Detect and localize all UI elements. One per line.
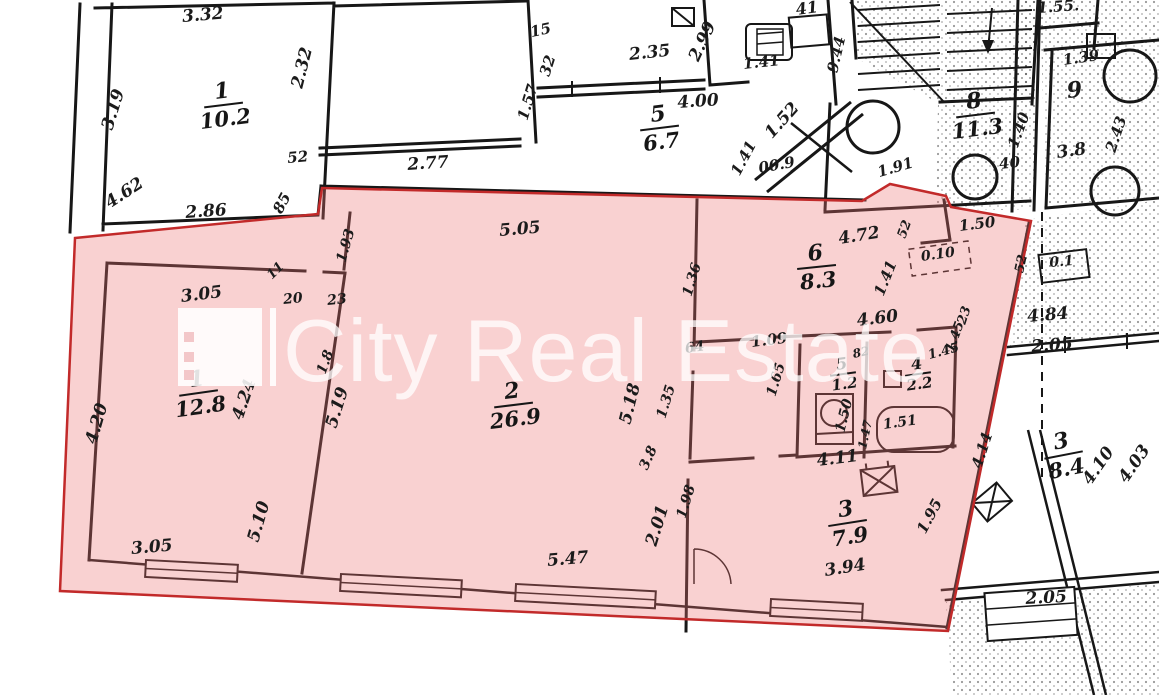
dimension-label: 52 — [287, 149, 309, 166]
dimension-label: 5.47 — [547, 549, 590, 570]
dimension-label: 52 — [1013, 254, 1029, 274]
dimension-label: 5.10 — [246, 500, 274, 544]
dimension-label: 3.94 — [823, 557, 867, 580]
dimension-label: 4.24 — [230, 377, 260, 422]
dimension-label: 4.00 — [677, 92, 719, 112]
dimension-label: 3.32 — [182, 5, 225, 26]
dimension-label: 3.8 — [1056, 141, 1088, 162]
dimension-label: 4.03 — [1116, 442, 1154, 486]
room-label: 226.9 — [485, 377, 542, 432]
dimension-label: 40 — [998, 155, 1020, 172]
room-label: 112.8 — [170, 365, 227, 421]
dimension-label: 1.41 — [872, 258, 900, 298]
dimension-label: 1.45 — [927, 341, 961, 362]
dimension-label: 1.35 — [655, 383, 678, 420]
room-area: 6.7 — [642, 127, 681, 154]
dimension-label: 2.99 — [687, 19, 720, 64]
dimension-label: 1.39 — [1062, 48, 1100, 68]
dimension-label: 9.44 — [825, 35, 848, 74]
room-area: 8.3 — [799, 266, 838, 293]
dimension-label: 2.77 — [407, 154, 449, 174]
dimension-label: 52 — [896, 219, 914, 240]
dimension-label: 1.57 — [516, 83, 541, 122]
dimension-label: 1.65 — [765, 361, 788, 398]
dimension-label: 2.05 — [1031, 336, 1073, 356]
dimension-label: 1.98 — [675, 483, 698, 520]
dimension-label: 4.11 — [816, 448, 859, 470]
dimension-label: 4.84 — [1027, 305, 1070, 326]
dimension-label: 1.55. — [1037, 0, 1080, 16]
dimension-label: 11 — [265, 260, 287, 282]
floorplan: 112.8226.937.942.251.268.3110.256.7811.3… — [0, 0, 1159, 695]
dimension-label: 85 — [271, 191, 294, 216]
room-label: 37.9 — [824, 495, 870, 550]
dimension-label: 64 — [684, 339, 705, 356]
dimension-label: 4.72 — [837, 225, 881, 248]
label-layer: 112.8226.937.942.251.268.3110.256.7811.3… — [0, 0, 1159, 695]
room-label: 811.3 — [947, 87, 1004, 142]
dimension-label: 2.43 — [1104, 115, 1130, 154]
dimension-label: 23 — [327, 292, 348, 308]
dimension-label: 1.50 — [833, 398, 855, 434]
room-area: 1.2 — [830, 373, 858, 393]
dimension-label: 1.8 — [315, 348, 336, 376]
dimension-label: 20 — [283, 291, 304, 307]
dimension-label: 2.05 — [1025, 589, 1067, 608]
room-area: 10.2 — [198, 103, 252, 132]
dimension-label: 2.86 — [185, 202, 227, 222]
room-area: 11.3 — [950, 113, 1004, 142]
dimension-label: 1.09 — [750, 331, 788, 350]
dimension-label: 4.10 — [1080, 444, 1118, 488]
dimension-label: 0.1 — [1049, 254, 1074, 270]
dimension-label: 1.93 — [335, 227, 358, 264]
dimension-label: 1.41 — [742, 53, 780, 72]
dimension-label: 5.19 — [324, 385, 352, 430]
dimension-label: 2.32 — [290, 46, 317, 90]
dimension-label: 3.19 — [100, 87, 128, 132]
dimension-label: 1.50 — [958, 215, 996, 234]
dimension-label: 1.51 — [882, 413, 918, 432]
dimension-label: 4.60 — [856, 308, 899, 330]
dimension-label: 1.40 — [1006, 111, 1033, 150]
room-area: 2.2 — [905, 373, 933, 393]
room-label: 56.7 — [637, 101, 682, 154]
dimension-label: 1.36 — [681, 261, 704, 298]
dimension-label: 4.62 — [103, 175, 147, 212]
dimension-label: 1.95 — [915, 497, 945, 536]
dimension-label: 1.91 — [876, 156, 915, 180]
dimension-label: 00.9 — [757, 155, 796, 176]
dimension-label: 1.52 — [762, 100, 802, 142]
dimension-label: 1.41 — [729, 139, 759, 178]
dimension-label: 5.18 — [618, 382, 645, 426]
dimension-label: 3.05 — [180, 284, 223, 306]
dimension-label: 2.01 — [644, 503, 672, 548]
dimension-label: 9 — [1066, 79, 1084, 102]
dimension-label: 3.05 — [131, 537, 174, 558]
dimension-label: 82 — [852, 345, 871, 360]
dimension-label: 0.10 — [920, 245, 956, 264]
dimension-label: 32 — [538, 54, 559, 78]
room-area: 7.9 — [830, 521, 870, 549]
dimension-label: 15 — [529, 21, 553, 40]
room-area: 26.9 — [488, 403, 542, 432]
dimension-label: 1.47 — [856, 419, 874, 450]
dimension-label: 2.35 — [628, 43, 671, 64]
dimension-label: 4.20 — [84, 402, 112, 446]
dimension-label: 3.8 — [637, 444, 660, 472]
room-label: 68.3 — [795, 240, 839, 293]
room-label: 110.2 — [195, 77, 252, 132]
dimension-label: 4.14 — [970, 431, 996, 470]
dimension-label: 41 — [795, 0, 819, 18]
dimension-label: 5.05 — [499, 219, 542, 240]
